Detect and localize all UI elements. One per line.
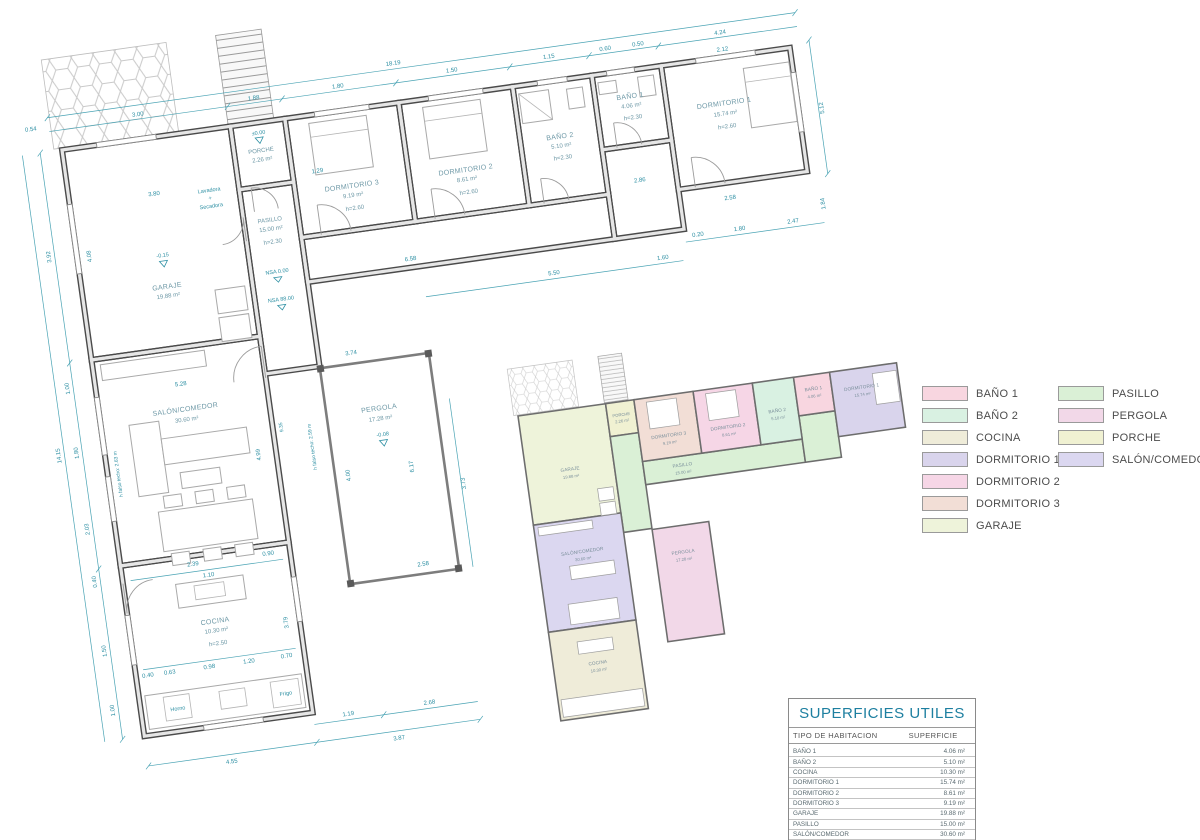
dim-right-4: 1.80	[733, 226, 746, 234]
legend-item-porche: PORCHE	[1058, 430, 1200, 445]
legend-swatch-bano1	[922, 386, 968, 401]
dim-mid-h: 9.35	[278, 422, 285, 433]
dim-top-4: 1.50	[446, 67, 459, 75]
note-falso-der: h falso techo: 2.59 m	[307, 423, 319, 470]
dim-left-2: 1.80	[73, 446, 81, 459]
dim-top-0: 0.54	[25, 126, 38, 134]
table-row: DORMITORIO 115.74 m²	[789, 778, 975, 788]
row-label: DORMITORIO 2	[793, 790, 892, 797]
dim-left-4: 0.40	[92, 575, 100, 588]
legend-swatch-cocina	[922, 430, 968, 445]
dim-right-5: 5.50	[548, 270, 561, 278]
legend-item-pasillo: PASILLO	[1058, 386, 1200, 401]
dim-bottom-0: 4.55	[226, 758, 239, 766]
legend-column-2: PASILLO PERGOLA PORCHE SALÓN/COMEDOR	[1058, 386, 1200, 467]
colored-plan: GARAJE 19.88 m² PORCHE 2.26 m² DORMITORI…	[507, 315, 939, 721]
legend-item-dorm3: DORMITORIO 3	[922, 496, 1060, 511]
dim-dorm1-b: 2.58	[724, 195, 737, 203]
dim-bsub-0: 1.19	[342, 711, 355, 719]
dim-pergola-t: 3.74	[345, 350, 358, 358]
superficies-table: SUPERFICIES UTILES TIPO DE HABITACION SU…	[788, 698, 976, 840]
row-value: 15.74 m²	[892, 779, 971, 786]
dim-left-6: 1.00	[110, 704, 118, 717]
table-row: DORMITORIO 39.19 m²	[789, 799, 975, 809]
legend-item-dorm1: DORMITORIO 1	[922, 452, 1060, 467]
dim-top-8: 4.24	[714, 29, 727, 37]
table-row: PASILLO15.00 m²	[789, 820, 975, 830]
row-value: 19.88 m²	[892, 810, 971, 817]
legend-label-bano1: BAÑO 1	[976, 388, 1018, 400]
legend-label-salon: SALÓN/COMEDOR	[1112, 454, 1200, 466]
dim-left-3: 2.03	[84, 522, 92, 535]
row-label: DORMITORIO 3	[793, 800, 892, 807]
legend-column-1: BAÑO 1 BAÑO 2 COCINA DORMITORIO 1 DORMIT…	[922, 386, 1060, 533]
colored-driveway-paving	[507, 360, 578, 415]
row-value: 30.60 m²	[892, 831, 971, 838]
legend-swatch-pergola	[1058, 408, 1104, 423]
legend-label-dorm3: DORMITORIO 3	[976, 498, 1060, 510]
dim-right-2: 2.47	[787, 218, 800, 226]
legend-label-pasillo: PASILLO	[1112, 388, 1159, 400]
legend-item-garaje: GARAJE	[922, 518, 1060, 533]
dim-right-0: 5.12	[819, 101, 827, 114]
table-row: GARAJE19.88 m²	[789, 809, 975, 819]
legend-label-porche: PORCHE	[1112, 432, 1161, 444]
row-value: 4.06 m²	[892, 748, 971, 755]
dim-left-0: 3.92	[46, 250, 54, 263]
table-row: SALÓN/COMEDOR30.60 m²	[789, 830, 975, 840]
table-rows: BAÑO 14.06 m² BAÑO 25.10 m² COCINA10.30 …	[789, 744, 975, 840]
legend-item-cocina: COCINA	[922, 430, 1060, 445]
legend-label-dorm2: DORMITORIO 2	[976, 476, 1060, 488]
row-label: BAÑO 1	[793, 748, 892, 755]
dim-top-3: 1.80	[332, 83, 345, 91]
legend-label-bano2: BAÑO 2	[976, 410, 1018, 422]
table-title: SUPERFICIES UTILES	[789, 699, 975, 728]
legend-item-bano1: BAÑO 1	[922, 386, 1060, 401]
legend-swatch-salon	[1058, 452, 1104, 467]
row-label: COCINA	[793, 769, 892, 776]
row-value: 9.19 m²	[892, 800, 971, 807]
colored-room-pasillo-2	[799, 411, 842, 462]
driveway-paving	[41, 42, 178, 149]
legend-swatch-dorm2	[922, 474, 968, 489]
dim-bsub-1: 2.68	[423, 699, 436, 707]
legend-item-bano2: BAÑO 2	[922, 408, 1060, 423]
dim-top-5: 1.15	[543, 53, 556, 61]
row-label: DORMITORIO 1	[793, 779, 892, 786]
legend-swatch-pasillo	[1058, 386, 1104, 401]
colored-room-pergola	[652, 522, 724, 642]
dim-top-7: 0.50	[632, 41, 645, 49]
row-value: 5.10 m²	[892, 759, 971, 766]
dim-top-6: 0.60	[599, 46, 612, 54]
table-col1-header: TIPO DE HABITACION	[793, 731, 895, 740]
legend-label-garaje: GARAJE	[976, 520, 1022, 532]
table-row: DORMITORIO 28.61 m²	[789, 789, 975, 799]
dim-left-1: 1.00	[64, 382, 72, 395]
legend-swatch-porche	[1058, 430, 1104, 445]
table-header: TIPO DE HABITACION SUPERFICIE	[789, 728, 975, 744]
dim-right-1: 1.84	[820, 197, 828, 210]
legend-label-cocina: COCINA	[976, 432, 1021, 444]
dim-left-5: 1.50	[101, 644, 109, 657]
legend-item-pergola: PERGOLA	[1058, 408, 1200, 423]
dim-bottom-1: 3.87	[393, 735, 406, 743]
table-row: BAÑO 25.10 m²	[789, 757, 975, 767]
dim-right-6: 1.60	[657, 255, 670, 263]
dim-top-inner: 2.12	[716, 46, 729, 54]
row-label: GARAJE	[793, 810, 892, 817]
dim-right-3: 0.20	[692, 231, 705, 239]
row-label: SALÓN/COMEDOR	[793, 831, 892, 838]
legend-item-salon: SALÓN/COMEDOR	[1058, 452, 1200, 467]
dim-right-7: 3.73	[460, 477, 468, 490]
row-value: 8.61 m²	[892, 790, 971, 797]
legend-swatch-dorm1	[922, 452, 968, 467]
dim-top-total: 18.19	[385, 60, 401, 68]
table-col2-header: SUPERFICIE	[895, 731, 971, 740]
legend-label-pergola: PERGOLA	[1112, 410, 1167, 422]
colored-entry-steps	[598, 353, 628, 403]
row-label: BAÑO 2	[793, 759, 892, 766]
table-row: BAÑO 14.06 m²	[789, 747, 975, 757]
legend-swatch-dorm3	[922, 496, 968, 511]
table-row: COCINA10.30 m²	[789, 768, 975, 778]
legend-swatch-bano2	[922, 408, 968, 423]
legend-label-dorm1: DORMITORIO 1	[976, 454, 1060, 466]
dim-left-total: 14.15	[55, 447, 63, 463]
floor-plan-sheet: GARAJE 19.88 m² PORCHE 2.26 m² DORMITORI…	[0, 0, 1200, 840]
legend-swatch-garaje	[922, 518, 968, 533]
entry-steps	[216, 29, 274, 125]
row-value: 15.00 m²	[892, 821, 971, 828]
row-label: PASILLO	[793, 821, 892, 828]
legend-item-dorm2: DORMITORIO 2	[922, 474, 1060, 489]
row-value: 10.30 m²	[892, 769, 971, 776]
